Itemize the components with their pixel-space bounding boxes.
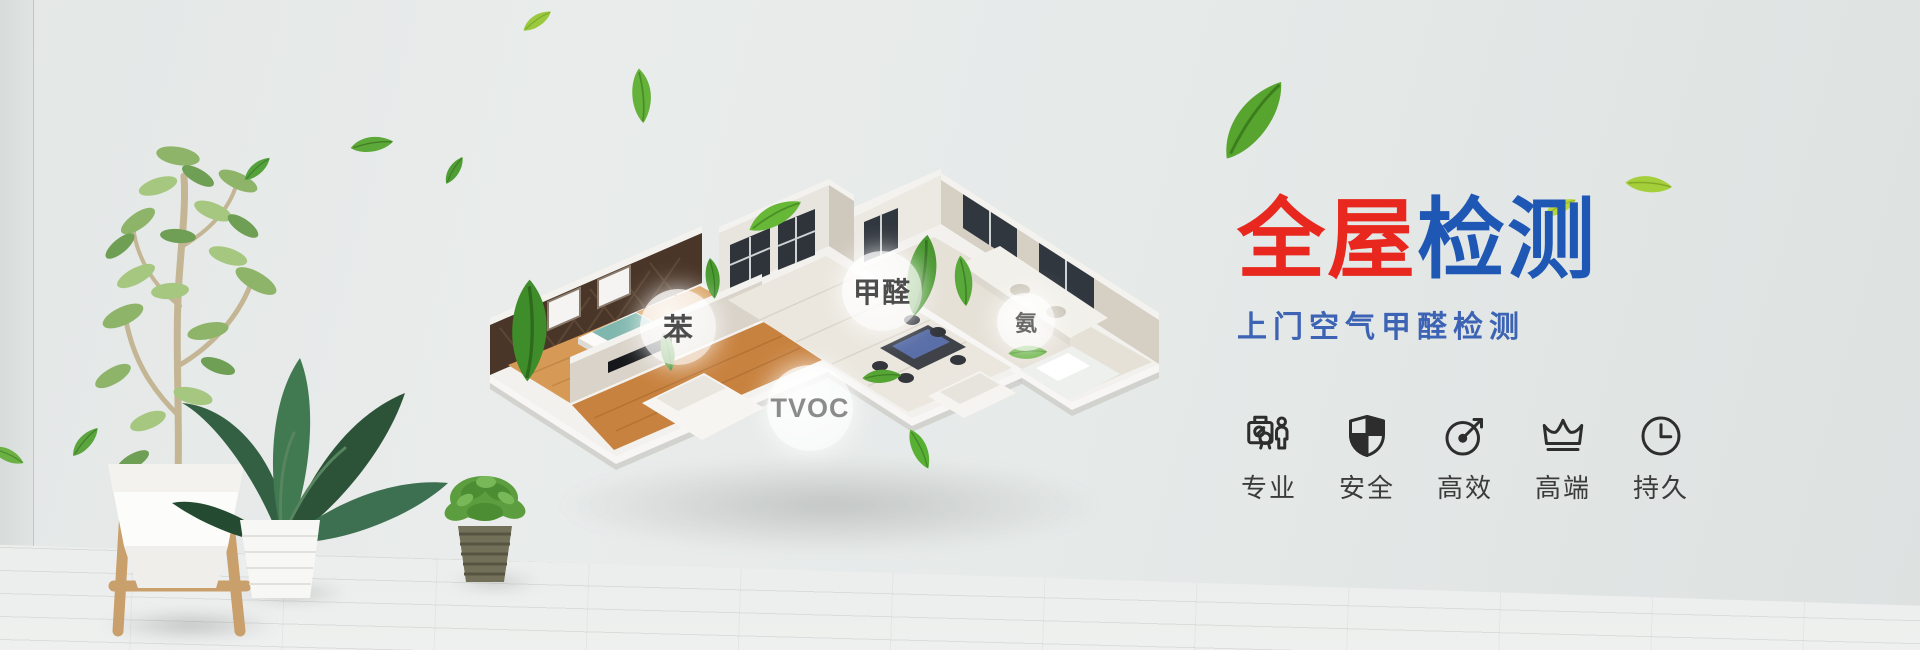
hero-banner: 苯 甲醛 氨 TVOC 全屋检测 上门空气甲醛检测 专业 [0, 0, 1920, 650]
subtitle: 上门空气甲醛检测 [1237, 302, 1597, 346]
pollutant-bubble-formaldehyde: 甲醛 [842, 251, 922, 331]
title-part-blue: 检测 [1417, 190, 1597, 289]
clock-icon [1637, 412, 1685, 460]
feature-label: 安全 [1339, 468, 1395, 505]
pollutant-label: 苯 [663, 305, 693, 349]
pollutant-label: TVOC [770, 393, 849, 424]
shield-icon [1343, 412, 1391, 460]
broadleaf-potted-plant [170, 348, 460, 603]
feature-label: 高端 [1535, 468, 1591, 505]
certificate-person-icon [1245, 412, 1293, 460]
feature-label: 专业 [1241, 468, 1297, 505]
headline-block: 全屋检测 上门空气甲醛检测 [1237, 196, 1597, 346]
feature-lasting: 持久 [1612, 412, 1710, 505]
page-title: 全屋检测 [1237, 196, 1597, 284]
wall-corner-panel [0, 0, 34, 585]
pollutant-label: 氨 [1015, 306, 1037, 338]
title-part-red: 全屋 [1237, 190, 1417, 289]
feature-row: 专业 安全 高效 [1220, 412, 1710, 505]
feature-efficient: 高效 [1416, 412, 1514, 505]
feature-label: 高效 [1437, 468, 1493, 505]
feature-highend: 高端 [1514, 412, 1612, 505]
pollutant-bubble-benzene: 苯 [640, 289, 716, 365]
feature-professional: 专业 [1220, 412, 1318, 505]
pollutant-label: 甲醛 [853, 271, 911, 311]
gauge-arrow-icon [1441, 412, 1489, 460]
feature-safety: 安全 [1318, 412, 1416, 505]
pollutant-bubble-ammonia: 氨 [997, 293, 1055, 351]
house-cutaway-illustration [460, 160, 1160, 530]
pollutant-bubble-tvoc: TVOC [767, 365, 853, 451]
feature-label: 持久 [1633, 468, 1689, 505]
crown-icon [1539, 412, 1587, 460]
